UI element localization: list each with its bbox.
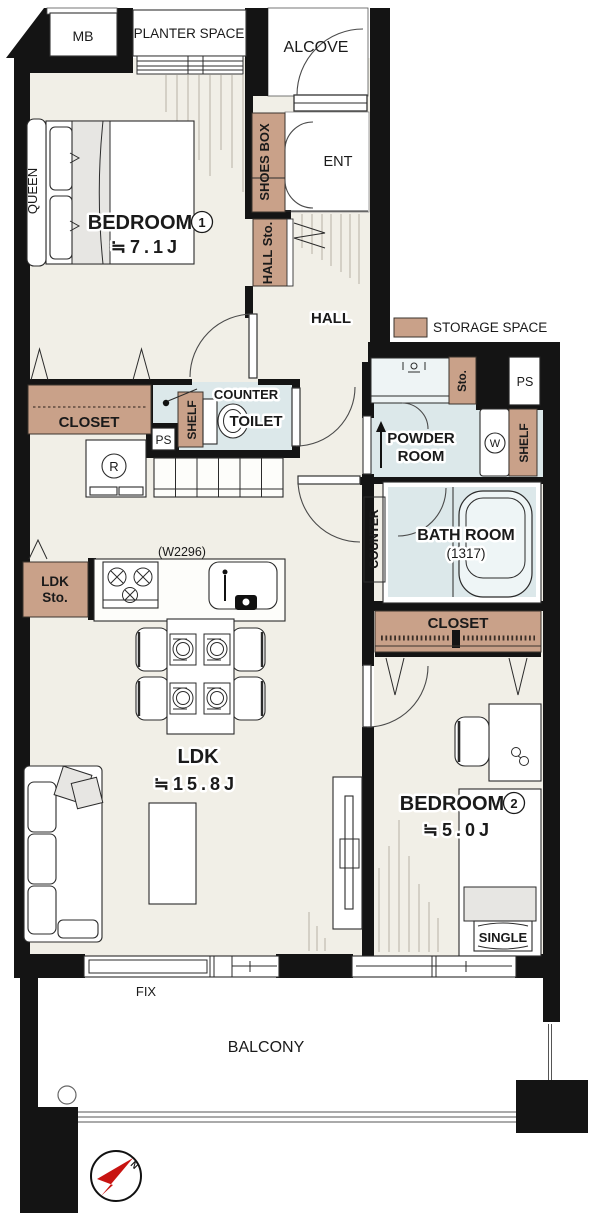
kitchen-counter (94, 559, 285, 621)
storage-legend-label: STORAGE SPACE (433, 320, 547, 335)
label-alcove: ALCOVE (284, 39, 349, 56)
ldk-door (298, 476, 360, 484)
desk-chair (455, 717, 489, 766)
label-ldk-storage: LDK Sto. (41, 574, 69, 605)
dining-table (167, 619, 234, 734)
hall-storage-door-track (287, 219, 293, 286)
svg-text:1: 1 (198, 215, 205, 230)
label-toilet: TOILET (229, 413, 282, 430)
bathtub (459, 491, 532, 597)
label-bedroom2-closet: CLOSET (428, 615, 489, 632)
sink (209, 562, 277, 610)
bedroom1-door (249, 314, 257, 378)
label-bath-size: (1317) (446, 546, 485, 561)
toilet-door (292, 388, 300, 446)
label-hall: HALL (311, 310, 351, 327)
label-toilet-counter: COUNTER (214, 387, 279, 402)
label-bedroom1-closet: CLOSET (59, 414, 120, 431)
label-powder-shelf: SHELF (517, 423, 531, 462)
coffee-table (149, 803, 196, 904)
label-shoes-box: SHOES BOX (257, 123, 272, 201)
label-mb: MB (73, 28, 94, 44)
label-ldk-size: ≒15.8J (154, 774, 238, 794)
label-fridge: R (109, 459, 118, 474)
floor-plan-canvas: N STORAGE SPACE MB PLANTER SPACE ALCOVE … (0, 0, 600, 1217)
svg-text:Sto.: Sto. (42, 590, 68, 605)
label-bedroom1-size: ≒7.1J (111, 237, 181, 257)
label-kitchen-width: (W2296) (158, 545, 206, 559)
svg-text:LDK: LDK (41, 574, 69, 589)
label-single-bed: SINGLE (479, 930, 528, 945)
storage-legend-swatch (394, 318, 427, 337)
dining-set (136, 619, 265, 734)
svg-text:BEDROOM: BEDROOM (400, 793, 504, 815)
vanity (371, 358, 452, 403)
label-hall-counter-text: COUNTER (367, 509, 381, 569)
label-queen-bed: QUEEN (25, 168, 40, 214)
planter-window (137, 56, 243, 74)
label-powder-ps: PS (517, 375, 534, 389)
desk (489, 704, 541, 781)
compass-icon: N (91, 1151, 141, 1201)
svg-text:2: 2 (510, 796, 517, 811)
bedroom2-door (363, 665, 371, 727)
label-ldk: LDK (177, 746, 219, 768)
storage-legend: STORAGE SPACE (394, 318, 547, 337)
label-powder-room-1: POWDER (387, 430, 455, 447)
ldk-window (84, 956, 279, 977)
floor-plan: N STORAGE SPACE MB PLANTER SPACE ALCOVE … (0, 0, 600, 1217)
label-fix-window: FIX (136, 984, 157, 999)
label-powder-storage: Sto. (457, 370, 469, 392)
sofa (24, 766, 103, 942)
label-planter-space: PLANTER SPACE (134, 26, 245, 41)
label-toilet-ps: PS (155, 433, 171, 447)
label-hall-storage: HALL Sto. (260, 222, 275, 285)
tv-board (333, 777, 362, 929)
label-toilet-shelf: SHELF (185, 400, 199, 439)
label-powder-room-2: ROOM (398, 448, 445, 465)
svg-text:BEDROOM: BEDROOM (88, 212, 192, 234)
label-ent: ENT (324, 154, 353, 170)
sofa-pillow (71, 777, 103, 809)
label-washer: W (490, 438, 501, 450)
bedroom2-window (352, 956, 516, 977)
kitchen-cupboard (154, 458, 283, 497)
stove (103, 562, 158, 608)
label-bedroom2-size: ≒5.0J (423, 820, 493, 840)
drain-circle (58, 1086, 76, 1104)
label-balcony: BALCONY (228, 1039, 305, 1056)
powder-sliding-door (363, 416, 371, 474)
label-bath-room: BATH ROOM (417, 527, 514, 544)
